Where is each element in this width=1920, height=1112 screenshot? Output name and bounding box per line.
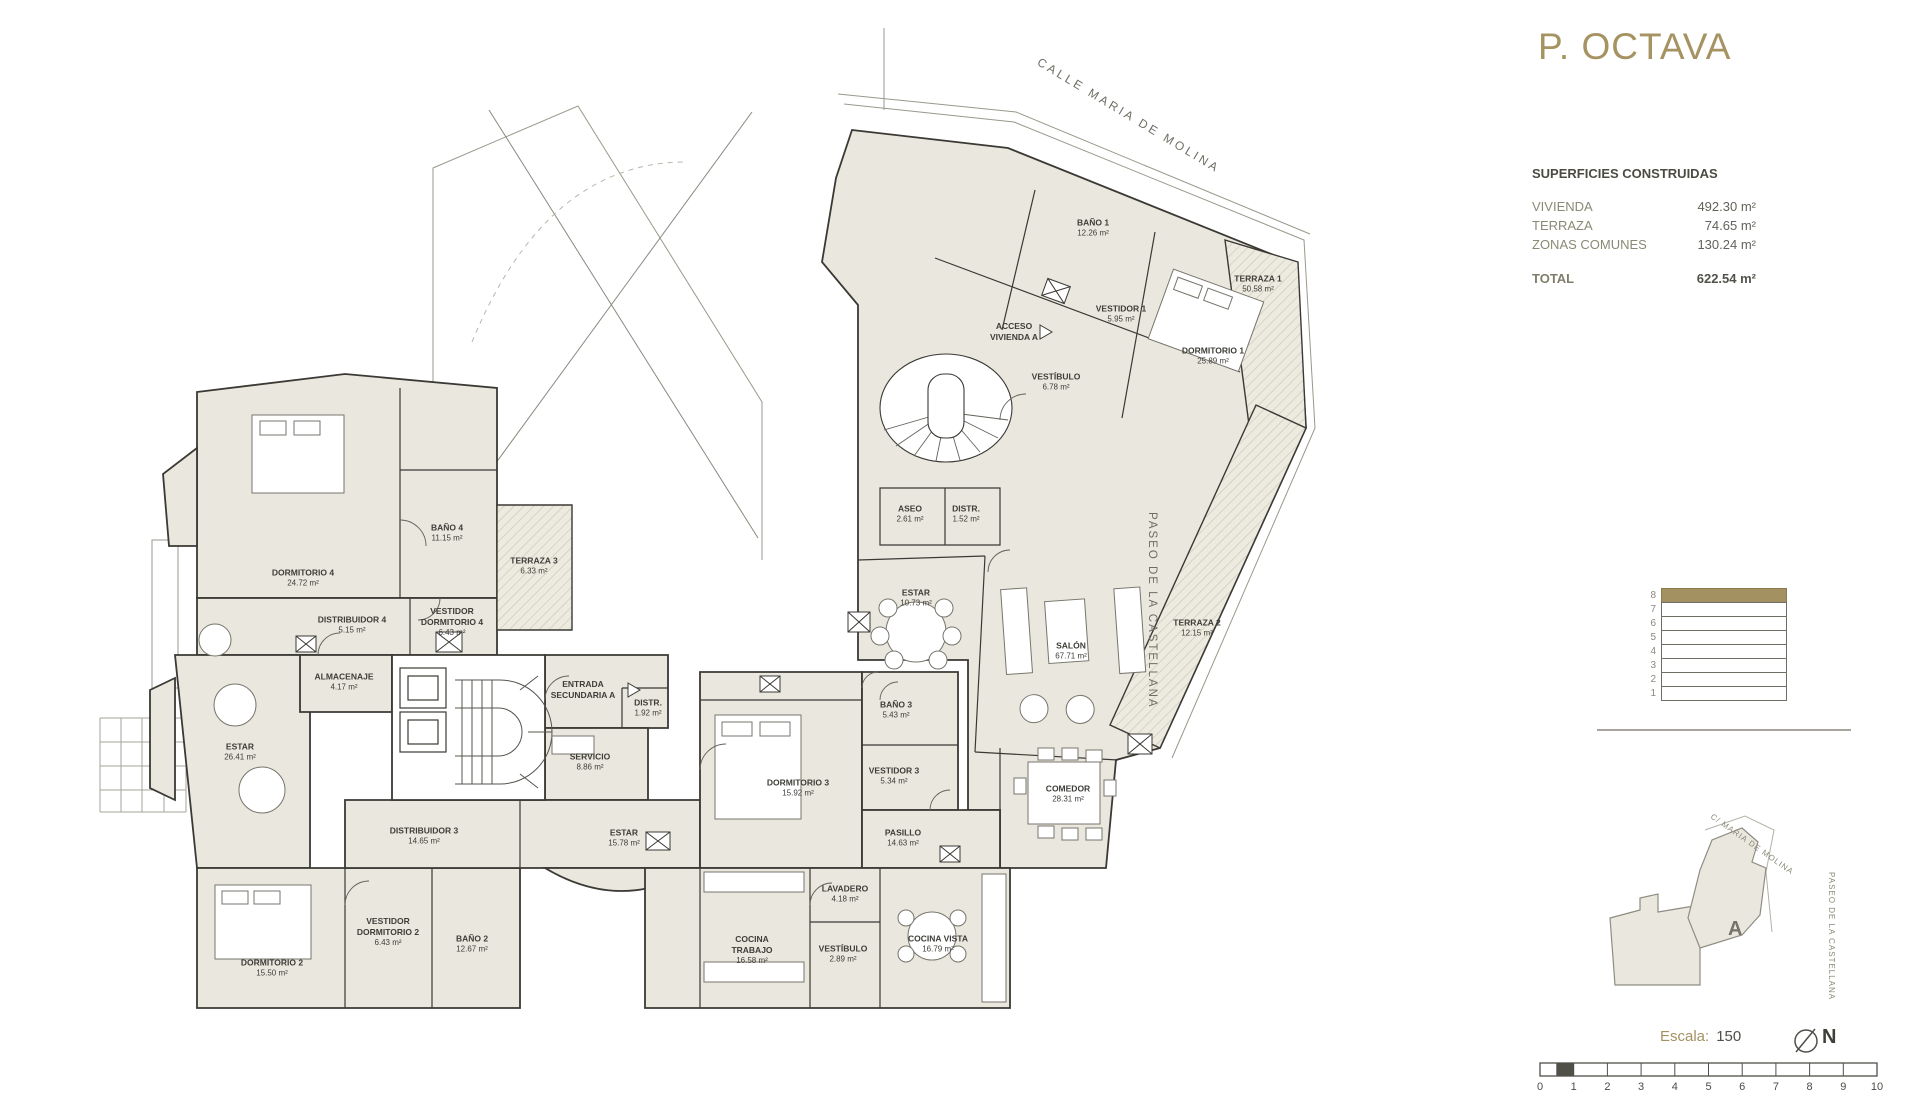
room-label: ACCESO VIVIENDA A xyxy=(981,321,1047,343)
floor-row: 8 xyxy=(1640,588,1787,603)
room-label: ESTAR10.73 m² xyxy=(900,587,932,608)
room-label: COCINA TRABAJO16.58 m² xyxy=(719,934,785,966)
room-label: VESTIDOR 15.95 m² xyxy=(1096,303,1147,324)
floor-box xyxy=(1661,616,1787,631)
room-label: DORMITORIO 315.92 m² xyxy=(767,777,829,798)
room-label: TERRAZA 150.58 m² xyxy=(1234,273,1281,294)
floor-box xyxy=(1661,602,1787,617)
page-title: P. OCTAVA xyxy=(1538,26,1731,68)
scale-number: 10 xyxy=(1871,1081,1883,1093)
room-label: VESTIDOR DORMITORIO 26.43 m² xyxy=(355,916,421,948)
scale-number: 6 xyxy=(1739,1081,1745,1093)
room-label: VESTÍBULO2.89 m² xyxy=(819,943,868,964)
room-label: DORMITORIO 424.72 m² xyxy=(272,567,334,588)
scale-number: 2 xyxy=(1604,1081,1610,1093)
room-label: SERVICIO8.86 m² xyxy=(570,751,610,772)
surfaces-table: SUPERFICIES CONSTRUIDAS VIVIENDA492.30 m… xyxy=(1532,166,1756,286)
scale-number: 0 xyxy=(1537,1081,1543,1093)
north-label: N xyxy=(1822,1026,1836,1049)
floor-box xyxy=(1661,672,1787,687)
surfaces-row: VIVIENDA492.30 m² xyxy=(1532,197,1756,216)
floor-row: 2 xyxy=(1640,672,1787,687)
floor-box xyxy=(1661,644,1787,659)
surfaces-row: TERRAZA74.65 m² xyxy=(1532,216,1756,235)
room-label: BAÑO 212.67 m² xyxy=(456,933,488,954)
surfaces-total-row: TOTAL622.54 m² xyxy=(1532,271,1756,286)
key-plan-street-right: PASEO DE LA CASTELLANA xyxy=(1827,872,1836,1000)
street-label-paseo-de-la-castellana: PASEO DE LA CASTELLANA xyxy=(1146,512,1158,709)
scale-number: 1 xyxy=(1571,1081,1577,1093)
floor-row: 4 xyxy=(1640,644,1787,659)
room-label: ENTRADA SECUNDARIA A xyxy=(550,679,616,701)
scale-number: 9 xyxy=(1840,1081,1846,1093)
scale-number: 8 xyxy=(1807,1081,1813,1093)
room-label: COMEDOR28.31 m² xyxy=(1046,783,1090,804)
room-label: DORMITORIO 215.50 m² xyxy=(241,957,303,978)
room-label: ALMACENAJE4.17 m² xyxy=(314,671,373,692)
floor-box xyxy=(1661,658,1787,673)
panel-divider xyxy=(1597,729,1851,731)
floor-plan-sheet: BAÑO 112.26 m² TERRAZA 150.58 m² VESTIDO… xyxy=(0,0,1920,1112)
surfaces-row: ZONAS COMUNES130.24 m² xyxy=(1532,235,1756,254)
room-label: DISTRIBUIDOR 45.15 m² xyxy=(318,614,386,635)
fan-stair-icon xyxy=(880,354,1012,462)
floor-row: 3 xyxy=(1640,658,1787,673)
room-label: BAÑO 112.26 m² xyxy=(1077,217,1109,238)
room-label: VESTIDOR 35.34 m² xyxy=(869,765,920,786)
scale-number: 7 xyxy=(1773,1081,1779,1093)
floor-box xyxy=(1661,630,1787,645)
floor-level-indicator: 8 7 6 5 4 3 2 1 xyxy=(1640,589,1787,701)
stair-core xyxy=(392,655,552,800)
scale-number: 5 xyxy=(1705,1081,1711,1093)
room-label: VESTÍBULO6.78 m² xyxy=(1032,371,1081,392)
room-label: ASEO2.61 m² xyxy=(896,503,923,524)
floor-row: 1 xyxy=(1640,686,1787,701)
key-plan-unit-label: A xyxy=(1728,918,1742,941)
scale-number: 3 xyxy=(1638,1081,1644,1093)
room-label: DORMITORIO 125.89 m² xyxy=(1182,345,1244,366)
room-label: BAÑO 411.15 m² xyxy=(431,522,463,543)
scale-caption: Escala:150 xyxy=(1660,1028,1741,1045)
floor-row: 6 xyxy=(1640,616,1787,631)
room-label: DISTR.1.52 m² xyxy=(952,503,980,524)
room-label: ESTAR26.41 m² xyxy=(224,741,256,762)
room-label: BAÑO 35.43 m² xyxy=(880,699,912,720)
scale-bar xyxy=(1540,1063,1877,1076)
room-label: COCINA VISTA16.79 m² xyxy=(908,933,968,954)
floor-box-active xyxy=(1661,588,1787,603)
room-label: TERRAZA 36.33 m² xyxy=(510,555,557,576)
room-label: ESTAR15.78 m² xyxy=(608,827,640,848)
room-label: DISTR.1.92 m² xyxy=(634,697,662,718)
room-label: VESTIDOR DORMITORIO 46.43 m² xyxy=(419,606,485,638)
floor-box xyxy=(1661,686,1787,701)
room-label: PASILLO14.63 m² xyxy=(885,827,921,848)
room-label: TERRAZA 212.15 m² xyxy=(1173,617,1220,638)
room-label: SALÓN67.71 m² xyxy=(1055,640,1087,661)
surfaces-heading: SUPERFICIES CONSTRUIDAS xyxy=(1532,166,1756,181)
scale-number: 4 xyxy=(1672,1081,1678,1093)
floor-row: 5 xyxy=(1640,630,1787,645)
north-arrow-icon xyxy=(1795,1029,1817,1052)
floor-row: 7 xyxy=(1640,602,1787,617)
room-label: LAVADERO4.18 m² xyxy=(822,883,868,904)
room-label: DISTRIBUIDOR 314.65 m² xyxy=(390,825,458,846)
